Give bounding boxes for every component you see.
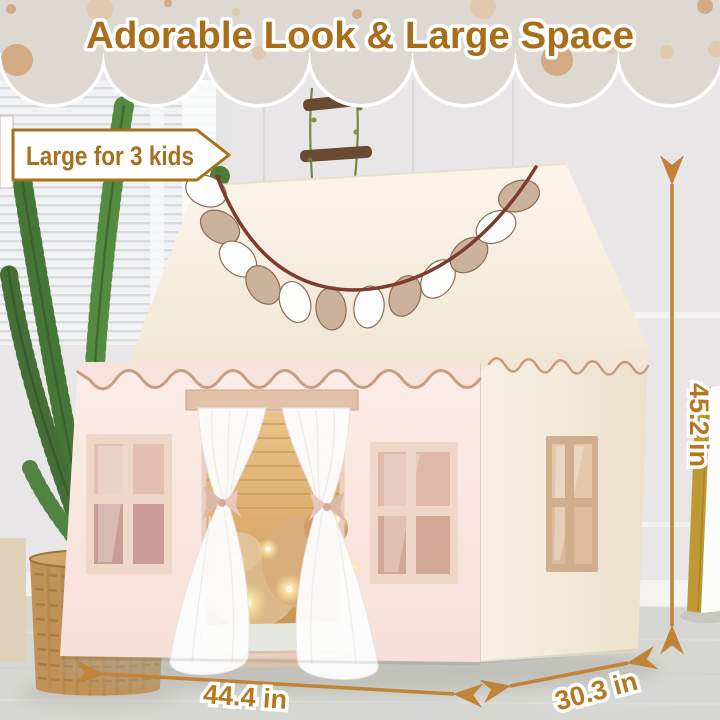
side-window xyxy=(546,436,598,572)
scene: 45.2 in 44.4 in 30.3 in Adorable Look & … xyxy=(0,0,720,720)
door-lintel xyxy=(186,390,358,410)
page-title: Adorable Look & Large Space xyxy=(86,15,634,57)
badge-tab xyxy=(0,116,13,188)
product-image: 45.2 in 44.4 in 30.3 in Adorable Look & … xyxy=(0,0,720,720)
badge-label: Large for 3 kids xyxy=(26,141,194,171)
front-right-window xyxy=(370,442,458,584)
height-label: 45.2 in xyxy=(684,383,714,467)
width-label: 44.4 in xyxy=(202,679,288,715)
side-object xyxy=(0,538,26,662)
front-left-window xyxy=(86,434,172,574)
